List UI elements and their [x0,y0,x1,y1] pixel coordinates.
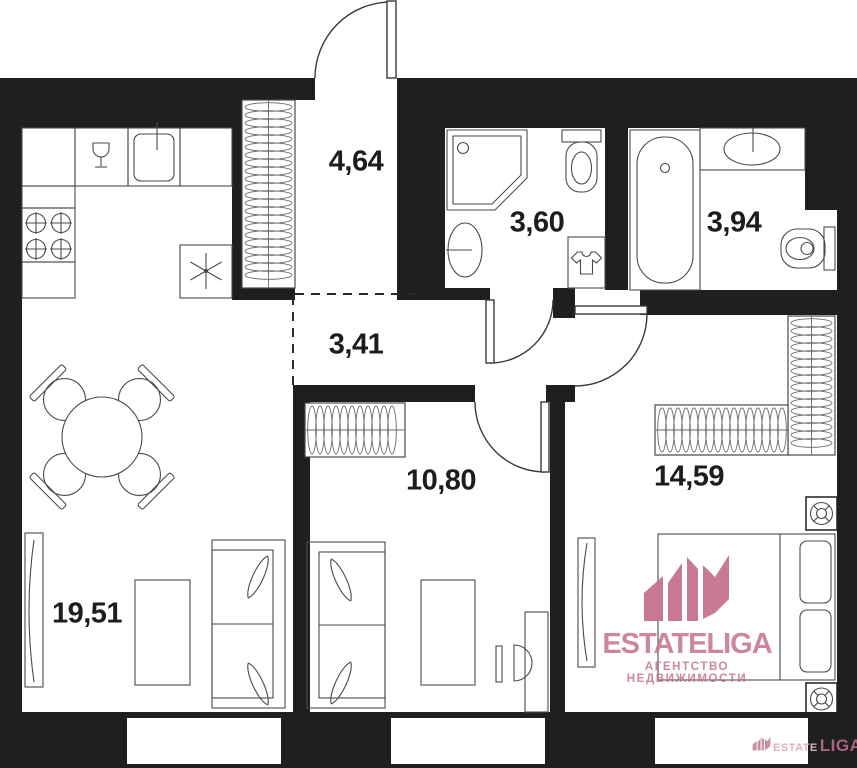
room-area-label-room-small: 10,80 [406,465,476,498]
washing-machine-icon [568,237,605,288]
bathtub-icon [630,130,700,290]
fridge-snowflake-icon [190,253,221,289]
sofa-icon [212,540,285,708]
hall-wardrobe-icon [242,100,295,288]
living-furniture [29,364,285,708]
vent-icon [806,683,837,715]
desk-chair-icon [496,612,548,712]
room-small-furniture [307,542,548,712]
bedroom-window-icon [578,538,595,667]
room-door-arc-icon [475,402,549,472]
room-area-label-bathroom-shower: 3,60 [510,207,564,240]
shower-icon [447,130,527,210]
toilet-icon [781,227,835,270]
bedroom-door-arc-icon [575,306,647,386]
bathroom-door-arc-icon [486,300,553,363]
living-rug [135,580,190,685]
room-area-label-living-kitchen: 19,51 [52,598,122,631]
room-rug [421,580,475,685]
room-area-label-corridor: 3,41 [329,329,383,362]
dining-set-icon [29,364,175,510]
basin-icon [446,223,482,277]
bedroom-furniture [658,497,837,715]
bed-icon [658,534,835,680]
entrance-door-arc-icon [315,1,396,78]
vanity-basin-icon [700,128,805,170]
vent-icon [806,497,837,530]
living-window-icon [25,533,43,687]
crown-logo-icon [644,555,729,621]
bedroom-wardrobe-tall-icon [788,316,835,455]
floor-plan-page: 4,64 3,60 3,94 3,41 10,80 14,59 19,51 ES… [0,0,857,768]
wine-glass-icon [93,143,109,167]
toilet-icon [562,130,601,192]
sofa-icon [307,542,385,708]
kitchen-sink-icon [134,122,174,181]
room-area-label-bathroom-tub: 3,94 [707,207,761,240]
floor-plan-drawing [0,0,857,768]
bedroom-wardrobe-wide-icon [655,405,788,455]
room-wardrobe-icon [305,403,405,457]
kitchen-fixtures [22,122,232,298]
stove-burners-icon [25,212,72,260]
room-area-label-entrance-hall: 4,64 [329,146,383,179]
room-area-label-bedroom: 14,59 [654,461,724,494]
